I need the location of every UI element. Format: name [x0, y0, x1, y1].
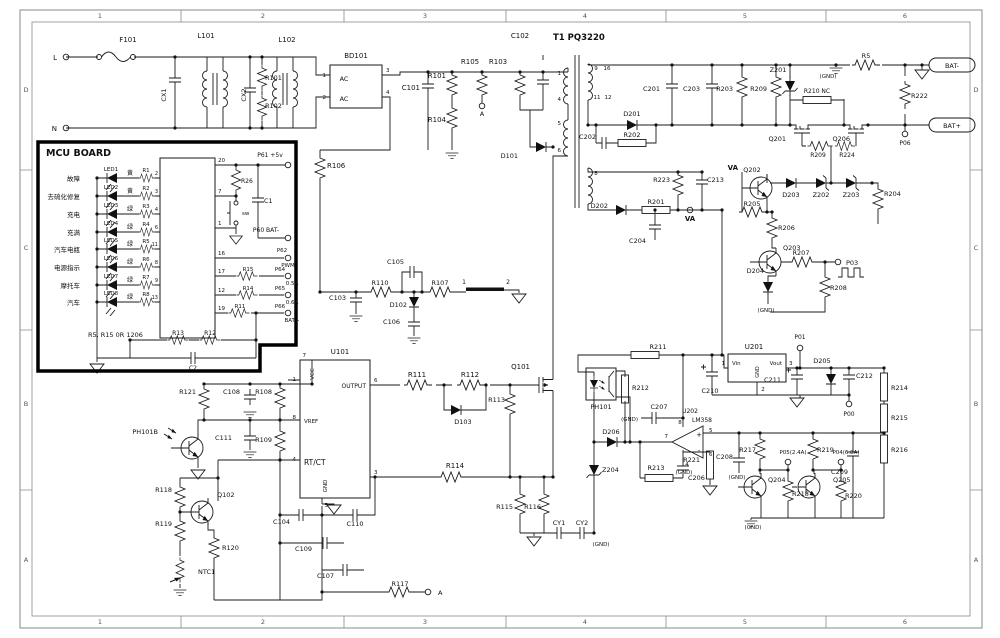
- schematic-label: R117: [392, 580, 409, 588]
- schematic-label: Q204: [768, 476, 786, 484]
- schematic-label: LED5: [104, 238, 119, 244]
- schematic-label: CY2: [576, 519, 589, 527]
- frame-row-label: D: [23, 86, 28, 94]
- schematic-label: C212: [856, 372, 873, 380]
- schematic-label: 绿: [127, 276, 133, 284]
- schematic-components: [63, 52, 975, 597]
- schematic-label: NTC1: [198, 568, 215, 576]
- schematic-label: 7: [303, 353, 307, 359]
- schematic-label: 故障: [67, 174, 81, 183]
- schematic-label: 0.5A: [286, 281, 299, 287]
- schematic-wires: [66, 55, 929, 600]
- schematic-label: C1: [264, 197, 273, 205]
- schematic-label: LED4: [104, 221, 119, 227]
- schematic-label: (GND): [729, 475, 746, 481]
- schematic-label: R210 NC: [804, 88, 830, 95]
- schematic-label: P64: [275, 267, 286, 273]
- schematic-label: R5: [142, 239, 150, 245]
- schematic-label: VREF: [304, 419, 318, 425]
- schematic-label: 20: [218, 158, 225, 164]
- schematic-label: R112: [461, 371, 479, 379]
- schematic-label: 去硫化修复: [48, 192, 81, 201]
- schematic-label: LM358: [692, 417, 712, 424]
- schematic-label: LED1: [104, 167, 118, 173]
- schematic-label: R222: [911, 92, 928, 100]
- schematic-label: PH101: [590, 403, 611, 411]
- schematic-label: 2: [155, 171, 158, 177]
- schematic-label: D102: [390, 301, 407, 309]
- schematic-label: Z204: [602, 466, 619, 474]
- schematic-label: R5: [862, 52, 871, 60]
- schematic-label: R101: [265, 74, 282, 82]
- schematic-label: R213: [648, 464, 665, 472]
- schematic-label: 汽车: [67, 298, 81, 307]
- schematic-label: R13: [172, 330, 184, 337]
- schematic-label: R208: [830, 284, 847, 292]
- schematic-label: C202: [579, 133, 596, 141]
- schematic-label: C104: [273, 518, 290, 526]
- schematic-label: U101: [331, 348, 349, 356]
- schematic-label: N: [52, 125, 57, 133]
- schematic-label: (GND): [745, 525, 762, 531]
- schematic-label: 5: [325, 503, 329, 509]
- frame-row-label: C: [24, 244, 29, 252]
- schematic-label: 2: [323, 95, 327, 101]
- schematic-label: R106: [327, 162, 346, 170]
- schematic-label: C209: [831, 468, 848, 476]
- frame-column-label: 5: [743, 12, 747, 20]
- schematic-label: 8: [293, 415, 297, 421]
- frame-row-label: D: [973, 86, 978, 94]
- schematic-label: 摩托车: [61, 281, 81, 290]
- schematic-label: Z203: [843, 191, 860, 199]
- schematic-label: BAT+: [284, 318, 299, 324]
- schematic-label: P03: [846, 259, 858, 267]
- schematic-label: C211: [764, 376, 781, 384]
- schematic-label: R211: [650, 343, 667, 351]
- frame-column-label: 5: [743, 618, 747, 626]
- schematic-label: Vout: [770, 361, 783, 367]
- schematic-label: R206: [778, 224, 795, 232]
- schematic-label: U201: [745, 343, 763, 351]
- schematic-label: 8: [594, 171, 598, 177]
- frame-row-label: B: [974, 400, 978, 408]
- schematic-label: 2: [506, 279, 510, 286]
- schematic-label: 3: [374, 470, 378, 476]
- schematic-label: C106: [383, 318, 400, 326]
- schematic-label: 16: [604, 66, 611, 72]
- frame-column-label: 1: [98, 12, 102, 20]
- schematic-label: R205: [744, 200, 761, 208]
- junction-dots: [95, 55, 923, 593]
- schematic-label: P62: [277, 248, 287, 254]
- schematic-label: 12: [605, 95, 612, 101]
- schematic-label: OUTPUT: [342, 383, 367, 390]
- schematic-label: P61 +5v: [257, 152, 283, 159]
- schematic-label: C110: [347, 520, 364, 528]
- schematic-label: R2: [142, 186, 149, 192]
- schematic-label: C204: [629, 237, 646, 245]
- schematic-label: L101: [197, 32, 214, 40]
- schematic-label: CX2: [240, 88, 248, 101]
- schematic-label: R218: [792, 490, 809, 498]
- frame-row-label: B: [24, 400, 28, 408]
- schematic-label: A: [480, 110, 485, 118]
- schematic-label: LED3: [104, 203, 119, 209]
- schematic-label: 7: [665, 434, 669, 440]
- schematic-label: R224: [839, 152, 855, 159]
- schematic-label: 4: [558, 97, 562, 103]
- schematic-label: LED6: [104, 256, 119, 262]
- schematic-label: A: [438, 589, 443, 597]
- schematic-label: 13: [152, 295, 158, 301]
- schematic-label: PH101B: [132, 428, 158, 436]
- schematic-label: R4: [142, 222, 150, 228]
- frame-column-label: 2: [261, 618, 265, 626]
- schematic-label: LED8: [104, 291, 119, 297]
- schematic-label: R105: [461, 58, 479, 66]
- schematic-label: R102: [265, 102, 282, 110]
- schematic-label: +: [696, 431, 702, 439]
- schematic-label: U202: [682, 408, 698, 415]
- schematic-label: MCU BOARD: [46, 148, 111, 159]
- schematic-label: BAT-: [945, 62, 960, 70]
- schematic-label: Q206: [832, 135, 850, 143]
- schematic-label: 黄: [127, 187, 133, 195]
- schematic-label: 16: [218, 251, 225, 257]
- schematic-label: P06: [899, 140, 910, 147]
- schematic-label: R7: [142, 275, 150, 281]
- schematic-label: D203: [782, 191, 799, 199]
- schematic-label: R108: [255, 388, 272, 396]
- schematic-label: 1: [218, 221, 222, 227]
- schematic-label: R116: [524, 503, 541, 511]
- schematic-label: R203: [716, 85, 733, 93]
- schematic-label: 7: [218, 189, 222, 195]
- schematic-label: 5: [558, 121, 562, 127]
- schematic-label: R201: [648, 198, 665, 206]
- schematic-label: C107: [317, 572, 334, 580]
- schematic-label: Z202: [813, 191, 830, 199]
- schematic-label: R209: [810, 152, 826, 159]
- schematic-label: (GND): [758, 308, 775, 314]
- schematic-label: D204: [747, 267, 764, 275]
- schematic-label: R101: [428, 72, 446, 80]
- schematic-label: R212: [632, 384, 649, 392]
- schematic-label: C210: [702, 387, 719, 395]
- schematic-label: R5, R15 0R 1206: [88, 331, 143, 339]
- schematic-label: AC: [340, 75, 349, 83]
- schematic-label: C105: [387, 258, 404, 266]
- schematic-label: R209: [750, 85, 767, 93]
- schematic-label: 电源指示: [54, 263, 81, 272]
- schematic-label: R103: [489, 58, 507, 66]
- schematic-label: 1: [293, 377, 297, 383]
- schematic-label: Q102: [217, 491, 235, 499]
- schematic-label: C208: [716, 453, 733, 461]
- schematic-label: R223: [653, 176, 670, 184]
- schematic-label: 11: [594, 95, 601, 101]
- schematic-label: R219: [817, 446, 834, 454]
- schematic-label: 19: [218, 306, 225, 312]
- schematic-label: R221: [683, 456, 700, 464]
- schematic-label: R3: [142, 204, 150, 210]
- schematic-label: R111: [408, 371, 426, 379]
- frame-column-label: 1: [98, 618, 102, 626]
- schematic-page: 112233445566DDCCBBAA: [0, 0, 1000, 638]
- schematic-label: C102: [511, 32, 529, 40]
- schematic-label: 3: [789, 361, 793, 367]
- schematic-label: C109: [295, 545, 312, 553]
- frame-row-label: A: [24, 556, 29, 564]
- schematic-label: CY1: [553, 519, 566, 527]
- schematic-label: C206: [688, 474, 705, 482]
- schematic-label: (GND): [621, 417, 638, 423]
- schematic-label: L: [53, 54, 57, 62]
- schematic-label: R216: [891, 446, 908, 454]
- schematic-label: R104: [428, 116, 447, 124]
- schematic-label: R15: [243, 267, 254, 273]
- schematic-label: BAT+: [943, 122, 961, 130]
- schematic-label: VA: [728, 164, 739, 172]
- schematic-label: 充电: [67, 210, 81, 219]
- schematic-label: R120: [222, 544, 239, 552]
- schematic-label: 8: [155, 260, 158, 266]
- schematic-label: 8: [678, 420, 682, 426]
- schematic-label: D205: [813, 357, 830, 365]
- schematic-label: P65: [275, 286, 286, 292]
- schematic-label: 黄: [127, 169, 133, 177]
- schematic-label: Q202: [743, 166, 761, 174]
- schematic-label: F101: [119, 36, 136, 44]
- schematic-label: VA: [685, 215, 696, 223]
- schematic-label: 绿: [127, 293, 133, 301]
- frame-column-label: 4: [583, 618, 587, 626]
- schematic-label: (GND): [593, 542, 610, 548]
- schematic-label: R1: [142, 168, 149, 174]
- frame-column-label: 3: [423, 12, 427, 20]
- schematic-label: LED7: [104, 274, 119, 280]
- schematic-label: GND: [323, 480, 329, 493]
- schematic-label: R119: [155, 520, 172, 528]
- circuit-schematic: 112233445566DDCCBBAA: [0, 0, 1000, 638]
- schematic-label: R204: [884, 190, 901, 198]
- frame-column-label: 2: [261, 12, 265, 20]
- schematic-label: RT/CT: [304, 458, 326, 467]
- schematic-label: Q201: [768, 135, 786, 143]
- frame-row-label: A: [974, 556, 979, 564]
- schematic-label: 11: [152, 242, 158, 248]
- schematic-label: R121: [179, 388, 196, 396]
- schematic-label: 6: [558, 148, 562, 154]
- schematic-label: 绿: [127, 258, 133, 266]
- schematic-label: 绿: [127, 205, 133, 213]
- schematic-label: R118: [155, 486, 172, 494]
- schematic-label: C103: [329, 294, 346, 302]
- schematic-label: R26: [241, 178, 253, 185]
- schematic-label: 1: [722, 361, 726, 367]
- schematic-label: C2: [189, 365, 197, 372]
- schematic-label: 3: [155, 189, 158, 195]
- schematic-label: R8: [142, 292, 150, 298]
- schematic-label: 12: [218, 288, 225, 294]
- schematic-label: R220: [845, 492, 862, 500]
- schematic-label: 1: [558, 71, 562, 77]
- schematic-label: R215: [891, 414, 908, 422]
- schematic-label: 4: [293, 457, 297, 463]
- schematic-label: 4: [386, 90, 390, 96]
- schematic-label: T1 PQ3220: [553, 33, 605, 43]
- schematic-label: 1: [462, 279, 466, 286]
- schematic-label: R114: [446, 462, 465, 470]
- schematic-label: 6: [374, 378, 378, 384]
- schematic-label: P60 BAT-: [253, 227, 279, 234]
- schematic-label: L102: [278, 36, 295, 44]
- frame-column-label: 3: [423, 618, 427, 626]
- schematic-label: C207: [651, 403, 668, 411]
- schematic-label: D101: [501, 152, 518, 160]
- schematic-label: D206: [602, 428, 619, 436]
- schematic-label: 9: [594, 66, 598, 72]
- schematic-label: R6: [142, 257, 150, 263]
- drawing-frame: 112233445566DDCCBBAA: [20, 10, 982, 628]
- schematic-label: R113: [488, 396, 505, 404]
- schematic-label: 绿: [127, 240, 133, 248]
- schematic-label: 2: [761, 387, 765, 393]
- schematic-label: D201: [623, 110, 640, 118]
- schematic-label: R115: [496, 503, 513, 511]
- schematic-label: 17: [218, 269, 225, 275]
- schematic-label: R214: [891, 384, 908, 392]
- schematic-label: CX1: [160, 88, 168, 101]
- schematic-label: 9: [155, 278, 158, 284]
- schematic-label: C111: [215, 434, 232, 442]
- schematic-label: 5: [709, 428, 713, 434]
- schematic-label: AC: [340, 95, 349, 103]
- schematic-label: R11: [235, 304, 246, 310]
- schematic-label: P05(2.4A): [779, 450, 806, 456]
- schematic-label: (GND): [820, 74, 837, 80]
- schematic-label: Q205: [833, 476, 851, 484]
- schematic-label: Q101: [511, 363, 530, 371]
- schematic-label: D202: [591, 202, 608, 210]
- schematic-label: C201: [643, 85, 660, 93]
- schematic-label: R12: [204, 330, 216, 337]
- schematic-label: D103: [454, 418, 471, 426]
- schematic-label: P04(6.8A): [832, 450, 859, 456]
- schematic-label: 1: [323, 73, 327, 79]
- schematic-label: R110: [372, 279, 389, 287]
- schematic-label: VCC: [310, 368, 316, 380]
- schematic-label: C108: [223, 388, 240, 396]
- frame-column-label: 6: [903, 618, 907, 626]
- schematic-label: R202: [624, 131, 641, 139]
- schematic-label: C213: [707, 176, 724, 184]
- schematic-label: 4: [155, 207, 158, 213]
- schematic-label: GND: [755, 366, 761, 378]
- schematic-label: R217: [739, 446, 756, 454]
- schematic-label: Vin: [732, 361, 741, 367]
- schematic-label: 充满: [67, 228, 81, 237]
- schematic-label: Z201: [770, 66, 787, 74]
- schematic-label: P01: [794, 334, 805, 341]
- schematic-label: P66: [275, 304, 286, 310]
- schematic-label: P00: [843, 411, 854, 418]
- schematic-label: R207: [793, 249, 810, 257]
- schematic-label: 绿: [127, 223, 133, 231]
- schematic-label: 0.6A: [286, 300, 299, 306]
- schematic-label: R14: [243, 286, 254, 292]
- frame-column-label: 6: [903, 12, 907, 20]
- schematic-label: BD101: [344, 52, 368, 60]
- schematic-label: R107: [432, 279, 449, 287]
- frame-column-label: 4: [583, 12, 587, 20]
- schematic-label: 汽车电瓶: [54, 245, 81, 254]
- schematic-label: C101: [402, 84, 420, 92]
- schematic-label: R109: [255, 436, 272, 444]
- schematic-label: sw: [242, 211, 250, 217]
- schematic-label: 3: [386, 68, 390, 74]
- frame-row-label: C: [974, 244, 979, 252]
- schematic-label: -: [698, 447, 701, 455]
- schematic-label: LED2: [104, 185, 118, 191]
- schematic-label: 6: [709, 452, 713, 458]
- schematic-label: C203: [683, 85, 700, 93]
- schematic-label: 6: [155, 225, 158, 231]
